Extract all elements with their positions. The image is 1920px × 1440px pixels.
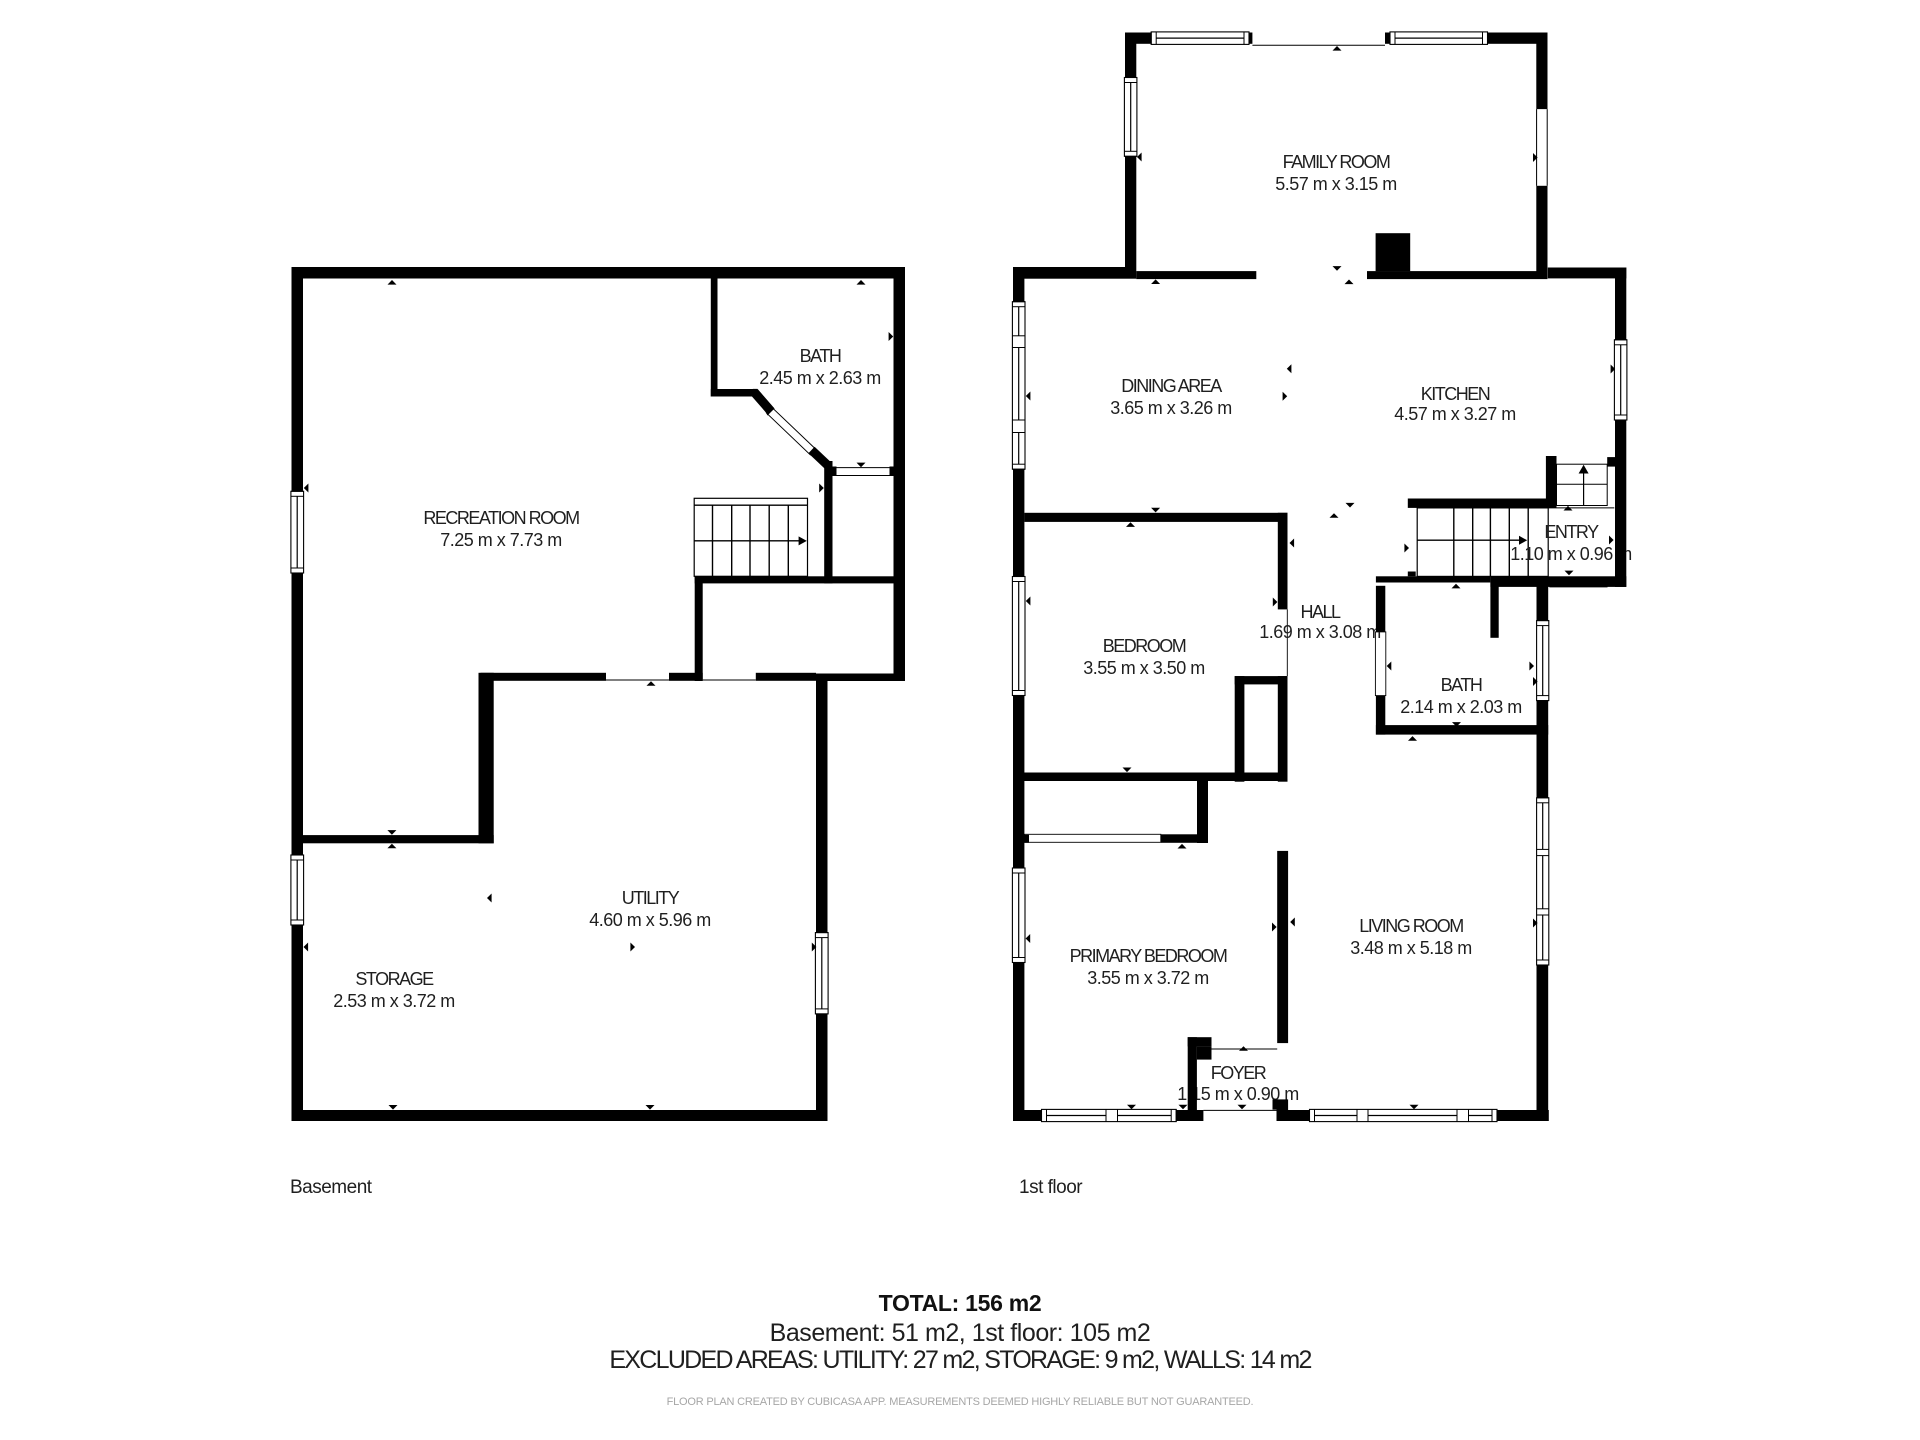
svg-text:UTILITY: UTILITY <box>622 888 680 908</box>
svg-text:1st floor: 1st floor <box>1019 1177 1083 1198</box>
svg-text:4.57 m x 3.27 m: 4.57 m x 3.27 m <box>1394 404 1516 424</box>
svg-text:1.69 m x 3.08 m: 1.69 m x 3.08 m <box>1259 622 1381 642</box>
svg-text:BATH: BATH <box>1441 675 1482 695</box>
svg-text:2.53 m x 3.72 m: 2.53 m x 3.72 m <box>333 991 455 1011</box>
svg-text:5.57 m x 3.15 m: 5.57 m x 3.15 m <box>1275 174 1397 194</box>
svg-text:Basement: 51 m2, 1st floor: 10: Basement: 51 m2, 1st floor: 105 m2 <box>770 1319 1151 1347</box>
svg-text:ENTRY: ENTRY <box>1544 522 1599 542</box>
svg-text:3.65 m x 3.26 m: 3.65 m x 3.26 m <box>1110 398 1232 418</box>
svg-text:3.48 m x 5.18 m: 3.48 m x 5.18 m <box>1350 938 1472 958</box>
svg-text:7.25 m x 7.73 m: 7.25 m x 7.73 m <box>440 530 562 550</box>
svg-text:FAMILY ROOM: FAMILY ROOM <box>1283 152 1390 172</box>
svg-text:DINING AREA: DINING AREA <box>1121 376 1222 396</box>
svg-text:3.55 m x 3.72 m: 3.55 m x 3.72 m <box>1087 968 1209 988</box>
svg-text:BEDROOM: BEDROOM <box>1103 636 1186 656</box>
svg-text:1.10 m x 0.96 m: 1.10 m x 0.96 m <box>1510 544 1632 564</box>
svg-text:STORAGE: STORAGE <box>355 969 434 989</box>
svg-text:3.55 m x 3.50 m: 3.55 m x 3.50 m <box>1083 658 1205 678</box>
svg-text:FLOOR PLAN CREATED BY CUBICASA: FLOOR PLAN CREATED BY CUBICASA APP. MEAS… <box>667 1396 1254 1408</box>
svg-text:KITCHEN: KITCHEN <box>1421 384 1490 404</box>
svg-text:HALL: HALL <box>1300 602 1341 622</box>
svg-text:2.14 m x 2.03 m: 2.14 m x 2.03 m <box>1400 697 1522 717</box>
svg-text:FOYER: FOYER <box>1211 1063 1267 1083</box>
svg-text:BATH: BATH <box>800 346 841 366</box>
svg-text:2.45 m x 2.63 m: 2.45 m x 2.63 m <box>759 368 881 388</box>
svg-text:TOTAL: 156 m2: TOTAL: 156 m2 <box>879 1290 1042 1316</box>
svg-text:PRIMARY BEDROOM: PRIMARY BEDROOM <box>1070 946 1227 966</box>
svg-text:EXCLUDED AREAS: UTILITY: 27 m2: EXCLUDED AREAS: UTILITY: 27 m2, STORAGE:… <box>609 1346 1311 1374</box>
svg-text:LIVING ROOM: LIVING ROOM <box>1359 916 1463 936</box>
svg-text:Basement: Basement <box>290 1177 373 1198</box>
svg-text:RECREATION ROOM: RECREATION ROOM <box>423 508 579 528</box>
svg-text:4.60 m x 5.96 m: 4.60 m x 5.96 m <box>589 910 711 930</box>
